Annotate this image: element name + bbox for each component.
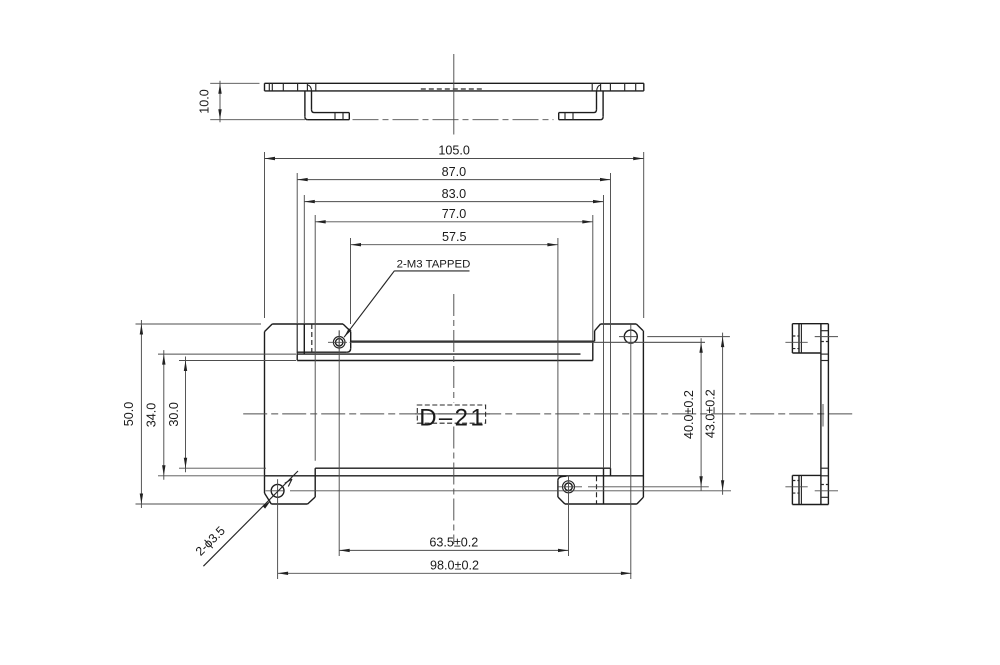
svg-text:50.0: 50.0 bbox=[122, 402, 136, 427]
svg-text:34.0: 34.0 bbox=[144, 403, 158, 428]
svg-text:63.5±0.2: 63.5±0.2 bbox=[429, 536, 478, 550]
svg-text:2-M3 TAPPED: 2-M3 TAPPED bbox=[397, 258, 471, 270]
svg-text:87.0: 87.0 bbox=[442, 165, 467, 179]
svg-text:D–21: D–21 bbox=[419, 405, 486, 432]
svg-text:10.0: 10.0 bbox=[198, 89, 212, 114]
svg-text:43.0±0.2: 43.0±0.2 bbox=[704, 389, 718, 438]
svg-text:98.0±0.2: 98.0±0.2 bbox=[430, 559, 479, 573]
svg-text:77.0: 77.0 bbox=[442, 207, 467, 221]
svg-text:105.0: 105.0 bbox=[438, 144, 470, 158]
svg-text:40.0±0.2: 40.0±0.2 bbox=[682, 390, 696, 439]
svg-text:83.0: 83.0 bbox=[442, 187, 467, 201]
svg-text:30.0: 30.0 bbox=[167, 402, 181, 427]
svg-text:57.5: 57.5 bbox=[442, 230, 467, 244]
